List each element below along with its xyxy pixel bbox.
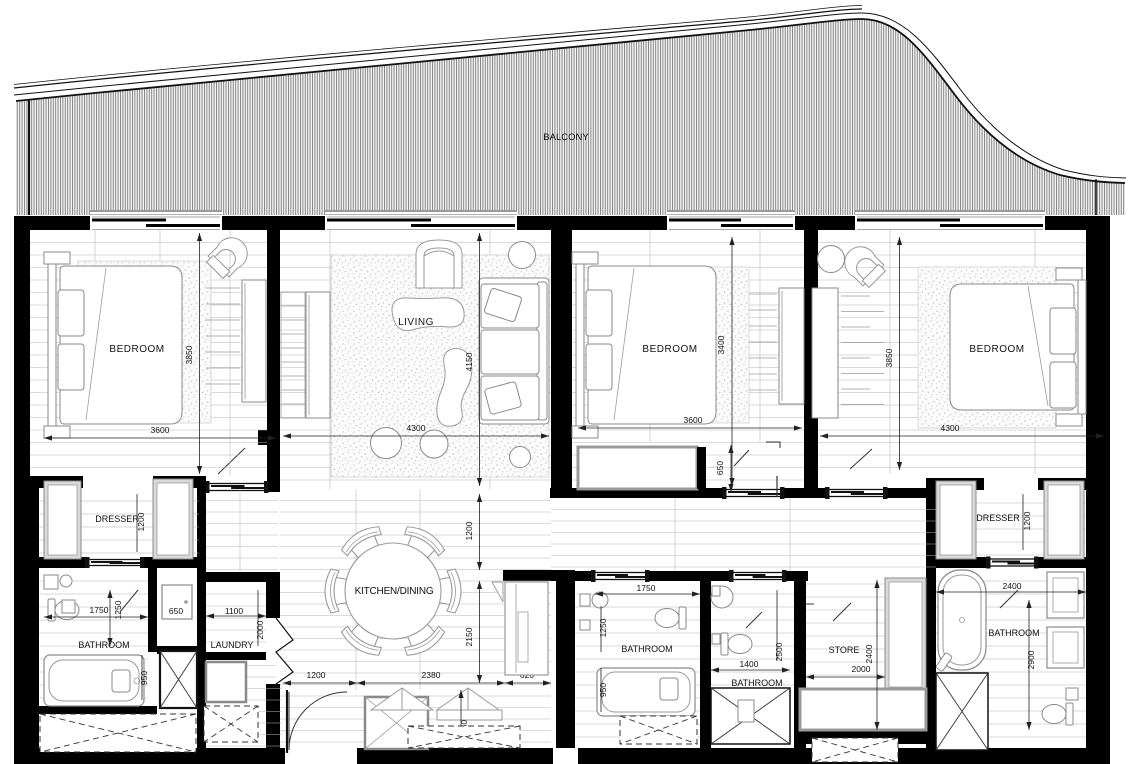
svg-text:BALCONY: BALCONY: [543, 132, 589, 143]
svg-text:4150: 4150: [464, 352, 474, 371]
svg-text:2000: 2000: [852, 664, 871, 674]
svg-text:2400: 2400: [864, 644, 874, 663]
svg-text:1200: 1200: [307, 670, 326, 680]
svg-text:DRESSER: DRESSER: [95, 514, 139, 524]
svg-text:650: 650: [169, 606, 183, 616]
svg-text:3600: 3600: [684, 415, 703, 425]
svg-text:BATHROOM: BATHROOM: [988, 628, 1039, 638]
svg-text:BEDROOM: BEDROOM: [109, 344, 164, 355]
svg-text:DRESSER: DRESSER: [976, 513, 1020, 523]
svg-text:KITCHEN/DINING: KITCHEN/DINING: [355, 586, 434, 597]
svg-text:2150: 2150: [464, 627, 474, 646]
svg-text:LAUNDRY: LAUNDRY: [211, 640, 254, 650]
svg-text:1200: 1200: [136, 512, 146, 531]
svg-text:1250: 1250: [598, 618, 608, 637]
svg-text:1750: 1750: [90, 605, 109, 615]
svg-text:BEDROOM: BEDROOM: [969, 344, 1024, 355]
svg-text:1400: 1400: [740, 659, 759, 669]
svg-text:LIVING: LIVING: [398, 317, 434, 328]
svg-text:1200: 1200: [464, 521, 474, 540]
svg-text:BEDROOM: BEDROOM: [642, 344, 697, 355]
svg-text:BATHROOM: BATHROOM: [78, 640, 129, 650]
svg-text:3600: 3600: [151, 425, 170, 435]
svg-text:2900: 2900: [1026, 650, 1036, 669]
svg-text:2000: 2000: [255, 620, 265, 639]
svg-text:3850: 3850: [184, 345, 194, 364]
svg-text:2500: 2500: [774, 642, 784, 661]
svg-text:BATHROOM: BATHROOM: [621, 644, 672, 654]
svg-text:4300: 4300: [941, 423, 960, 433]
svg-text:2380: 2380: [422, 670, 441, 680]
svg-text:1200: 1200: [1022, 511, 1032, 530]
svg-text:950: 950: [598, 683, 608, 697]
svg-text:4300: 4300: [407, 423, 426, 433]
svg-text:BATHROOM: BATHROOM: [731, 678, 782, 688]
svg-text:1100: 1100: [225, 606, 244, 616]
svg-text:2400: 2400: [1003, 581, 1022, 591]
svg-text:3850: 3850: [884, 348, 894, 367]
svg-text:STORE: STORE: [829, 645, 860, 655]
svg-text:3400: 3400: [716, 335, 726, 354]
svg-text:650: 650: [715, 461, 725, 475]
svg-text:1750: 1750: [637, 583, 656, 593]
svg-text:950: 950: [139, 671, 149, 685]
